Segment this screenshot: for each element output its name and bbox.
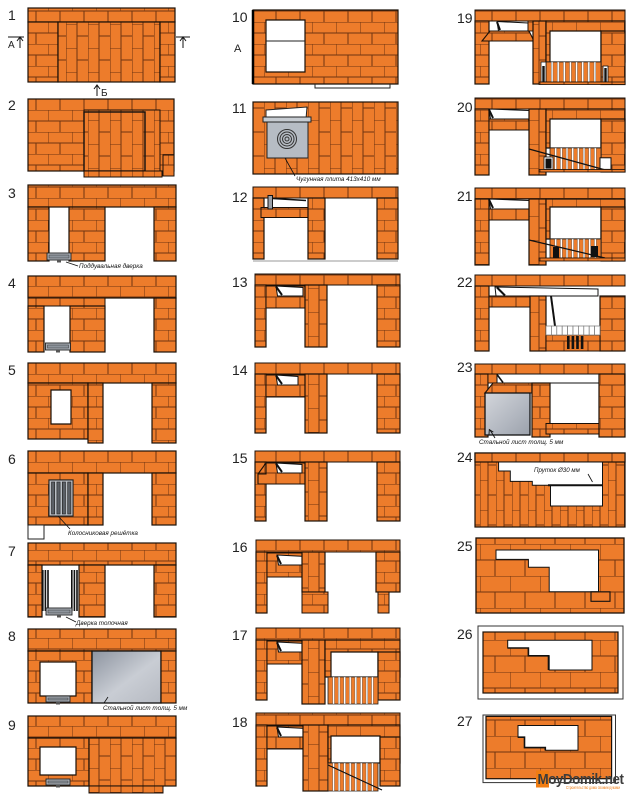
svg-text:5: 5 — [8, 362, 16, 378]
svg-text:Стальной лист толщ. 5 мм: Стальной лист толщ. 5 мм — [103, 704, 188, 712]
svg-text:А: А — [8, 40, 15, 51]
svg-text:8: 8 — [8, 628, 16, 644]
svg-text:22: 22 — [457, 274, 473, 290]
svg-text:18: 18 — [232, 714, 248, 730]
svg-text:Пруток Ø30 мм: Пруток Ø30 мм — [534, 467, 581, 474]
svg-text:20: 20 — [457, 99, 473, 115]
svg-text:24: 24 — [457, 449, 473, 465]
svg-text:21: 21 — [457, 188, 473, 204]
svg-text:6: 6 — [8, 451, 16, 467]
svg-text:27: 27 — [457, 713, 473, 729]
svg-text:26: 26 — [457, 626, 473, 642]
svg-text:Поддувальная дверка: Поддувальная дверка — [79, 262, 143, 270]
svg-text:1: 1 — [8, 7, 16, 23]
svg-text:2: 2 — [8, 97, 16, 113]
svg-text:16: 16 — [232, 539, 248, 555]
svg-text:14: 14 — [232, 362, 248, 378]
svg-text:12: 12 — [232, 189, 248, 205]
svg-text:25: 25 — [457, 538, 473, 554]
svg-text:11: 11 — [232, 100, 247, 116]
svg-text:4: 4 — [8, 275, 16, 291]
svg-text:15: 15 — [232, 450, 248, 466]
svg-text:А: А — [234, 43, 242, 55]
svg-text:23: 23 — [457, 359, 473, 375]
svg-text:13: 13 — [232, 274, 248, 290]
svg-text:Стальной лист толщ. 5 мм: Стальной лист толщ. 5 мм — [479, 438, 564, 446]
svg-text:9: 9 — [8, 717, 16, 733]
svg-text:7: 7 — [8, 543, 16, 559]
svg-text:Колосниковая решётка: Колосниковая решётка — [68, 530, 138, 537]
svg-text:Чугунная плита 413х410 мм: Чугунная плита 413х410 мм — [296, 176, 381, 183]
svg-text:Строительство дома своими рука: Строительство дома своими руками — [566, 785, 620, 790]
svg-text:Б: Б — [101, 88, 108, 99]
svg-text:3: 3 — [8, 185, 16, 201]
svg-text:10: 10 — [232, 9, 248, 25]
svg-text:Дверка топочная: Дверка топочная — [75, 620, 128, 627]
svg-text:19: 19 — [457, 10, 473, 26]
svg-text:17: 17 — [232, 627, 248, 643]
